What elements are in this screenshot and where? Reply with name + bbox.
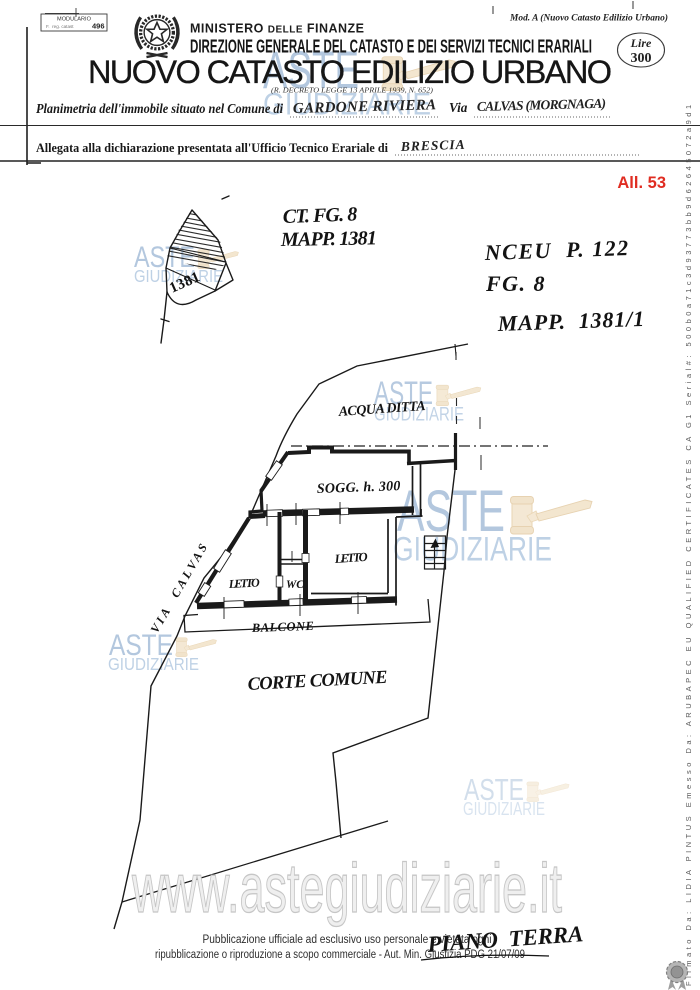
svg-text:GIUDIZIARIE: GIUDIZIARIE bbox=[393, 531, 552, 569]
svg-text:300: 300 bbox=[631, 51, 652, 66]
svg-text:GIUDIZIARIE: GIUDIZIARIE bbox=[463, 799, 545, 819]
svg-text:BALCONE: BALCONE bbox=[251, 619, 315, 635]
svg-text:LETTO: LETTO bbox=[227, 575, 260, 591]
svg-text:WC: WC bbox=[286, 579, 304, 591]
svg-text:Via: Via bbox=[449, 100, 468, 115]
svg-text:496: 496 bbox=[92, 22, 105, 31]
svg-text:LETTO: LETTO bbox=[333, 550, 368, 566]
svg-text:Firmato Da: LIDIA PINTUS Emess: Firmato Da: LIDIA PINTUS Emesso Da: ARUB… bbox=[684, 101, 693, 986]
svg-text:Mod. A (Nuovo Catasto Edilizio: Mod. A (Nuovo Catasto Edilizio Urbano) bbox=[509, 13, 668, 24]
svg-text:FG. 8: FG. 8 bbox=[485, 271, 546, 296]
svg-text:BRESCIA: BRESCIA bbox=[400, 137, 466, 154]
svg-text:NCEU P. 122: NCEU P. 122 bbox=[483, 235, 630, 265]
svg-text:Allegata alla dichiarazione pr: Allegata alla dichiarazione presentata a… bbox=[36, 141, 388, 155]
svg-text:Lire: Lire bbox=[630, 36, 652, 50]
svg-text:MINISTERO DELLE FINANZE: MINISTERO DELLE FINANZE bbox=[190, 22, 364, 36]
svg-text:(R. DECRETO LEGGE 13 APRILE 19: (R. DECRETO LEGGE 13 APRILE 1939, N. 652… bbox=[271, 86, 434, 95]
svg-text:MAPP. 1381: MAPP. 1381 bbox=[280, 227, 378, 251]
svg-text:Planimetria dell'immobile situ: Planimetria dell'immobile situato nel Co… bbox=[36, 101, 283, 116]
svg-text:CT. FG. 8: CT. FG. 8 bbox=[282, 203, 359, 228]
svg-text:MAPP. 1381/1: MAPP. 1381/1 bbox=[496, 306, 646, 336]
svg-text:SOGG. h. 300: SOGG. h. 300 bbox=[317, 479, 401, 497]
svg-text:All. 53: All. 53 bbox=[617, 174, 666, 192]
svg-text:MODULARIO: MODULARIO bbox=[57, 17, 92, 23]
svg-text:GIUDIZIARIE: GIUDIZIARIE bbox=[108, 654, 199, 674]
svg-text:F. reg. catast: F. reg. catast bbox=[46, 24, 74, 29]
svg-text:www.astegiudiziarie.it: www.astegiudiziarie.it bbox=[131, 849, 562, 927]
